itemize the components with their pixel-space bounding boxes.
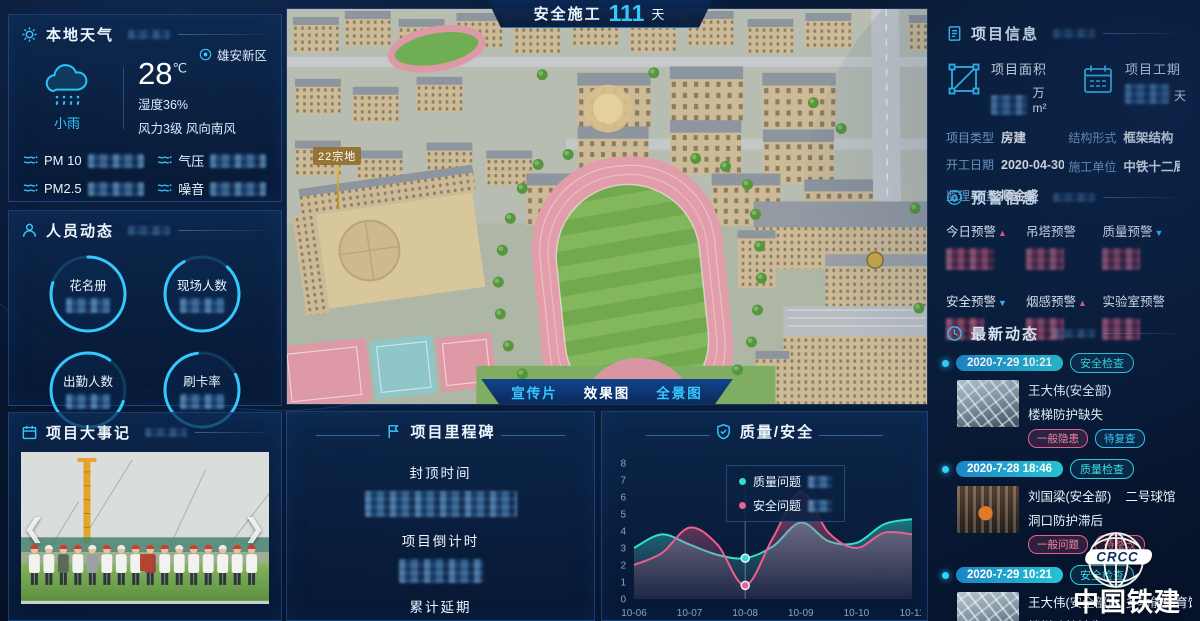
milestone-label: 封顶时间 — [287, 462, 594, 482]
legend-value-redacted — [808, 476, 832, 488]
milestone-value-redacted — [365, 491, 517, 517]
news-venue: 多功能体育馆 — [1125, 592, 1192, 611]
location-name: 雄安新区 — [217, 45, 267, 64]
land-parcel-label: 22宗地 — [313, 147, 361, 165]
air-metric: PM 10 — [23, 151, 149, 170]
document-icon — [946, 25, 963, 42]
milestone-label: 项目倒计时 — [287, 530, 594, 550]
air-metric: 噪音 — [157, 179, 267, 198]
status-tag: 一般隐患 — [1028, 429, 1088, 448]
photo-next-button[interactable]: ❯ — [243, 515, 265, 541]
news-person: 王大伟(安全部) — [1028, 380, 1111, 399]
svg-text:3: 3 — [620, 544, 626, 555]
warning-value-redacted — [1026, 248, 1064, 270]
milestone-label: 累计延期 — [287, 596, 594, 616]
legend-label: 质量问题 — [753, 473, 801, 490]
svg-text:10-10: 10-10 — [844, 608, 870, 619]
legend-value-redacted — [808, 500, 832, 512]
ring-label: 刷卡率 — [183, 371, 221, 390]
warning-item: 吊塔预警 — [1026, 221, 1096, 275]
project-stats: 项目面积 万m² 项目工期 天 — [934, 51, 1192, 117]
news-tags: 一般隐患待复查 — [1028, 429, 1145, 448]
warning-item: 今日预警▲ — [946, 221, 1020, 275]
calendar-icon — [21, 424, 38, 441]
field-label: 开工日期 — [946, 158, 994, 172]
legend-dot — [739, 478, 746, 485]
weather-panel: 本地天气 雄安新区 小雨 28℃ — [8, 14, 282, 202]
location-chip[interactable]: 雄安新区 — [199, 45, 267, 64]
stat-label: 项目工期 — [1125, 62, 1181, 77]
project-field: 施工单位中铁十二局 — [1068, 156, 1180, 175]
milestone-item: 累计延期 — [287, 596, 594, 621]
warning-value-redacted — [1102, 248, 1140, 270]
safety-days-banner: 安全施工 111 天 — [488, 0, 713, 28]
field-label: 项目类型 — [946, 131, 994, 145]
field-value: 中铁十二局 — [1123, 160, 1180, 174]
stat-unit: 万m² — [1032, 84, 1054, 115]
panel-title: 质量/安全 — [740, 421, 814, 442]
milestone-panel: 项目里程碑 封顶时间 项目倒计时 累计延期 — [286, 411, 595, 621]
status-tag: 一般问题 — [1028, 535, 1088, 554]
svg-text:10-06: 10-06 — [621, 608, 647, 619]
milestone-list: 封顶时间 项目倒计时 累计延期 — [287, 462, 594, 621]
svg-text:10-09: 10-09 — [788, 608, 814, 619]
noise-icon — [157, 182, 172, 195]
svg-text:10-08: 10-08 — [732, 608, 758, 619]
clock-icon — [946, 325, 963, 342]
header-ticker-redacted — [145, 428, 187, 437]
svg-text:5: 5 — [620, 510, 626, 521]
location-pin-icon — [199, 48, 212, 61]
metric-label: 噪音 — [178, 179, 204, 198]
event-photo[interactable]: ❮ ❯ — [21, 452, 269, 604]
svg-text:4: 4 — [620, 527, 626, 538]
news-photo-thumbnail[interactable] — [957, 592, 1019, 621]
news-date-badge: 2020-7-29 10:21 — [956, 355, 1063, 371]
area-icon — [946, 61, 982, 97]
ring-label: 花名册 — [69, 275, 107, 294]
pm25-icon — [23, 182, 38, 195]
field-value: 房建 — [1001, 131, 1026, 145]
svg-text:0: 0 — [620, 595, 626, 606]
quality-safety-panel: 质量/安全 01234567810-0610-0710-0810-0910-10… — [601, 411, 928, 621]
status-tag: 待复查 — [1095, 429, 1145, 448]
panel-title: 本地天气 — [46, 24, 114, 45]
view-tab[interactable]: 效果图 — [584, 382, 631, 402]
news-category-badge: 安全检查 — [1070, 353, 1134, 373]
trend-arrow-icon: ▲ — [1078, 298, 1087, 308]
ring-value-redacted — [180, 394, 224, 409]
panel-title: 项目里程碑 — [410, 421, 495, 442]
news-panel: 最新动态 2020-7-29 10:21 安全检查 王大伟(安全部) 楼梯防护缺… — [934, 314, 1192, 621]
metric-value-redacted — [210, 182, 266, 196]
shield-check-icon — [715, 423, 732, 440]
metric-label: PM2.5 — [44, 181, 82, 196]
project-field: 结构形式框架结构 — [1068, 127, 1180, 146]
milestone-value-redacted — [399, 559, 483, 583]
ring-label: 现场人数 — [177, 275, 227, 294]
personnel-ring: 现场人数 — [160, 252, 244, 336]
news-tags: 一般问题待整改 — [1028, 535, 1175, 554]
svg-text:10-11: 10-11 — [900, 608, 921, 619]
warning-value-redacted — [946, 248, 994, 270]
aerial-render — [287, 9, 927, 405]
news-item[interactable]: 2020-7-29 10:21 安全检查 王大伟(安全部) 多功能体育馆 楼梯防… — [942, 565, 1184, 621]
dashboard: 安全施工 111 天 本地天气 雄安新区 — [0, 0, 1200, 621]
milestone-item: 封顶时间 — [287, 462, 594, 517]
project-events-panel: 项目大事记 ❮ ❯ — [8, 412, 282, 621]
header-ticker-redacted — [1053, 329, 1095, 338]
weather-condition: 小雨 — [25, 113, 109, 132]
pressure-icon — [157, 154, 172, 167]
view-tab[interactable]: 宣传片 — [511, 382, 558, 402]
ring-value-redacted — [66, 298, 110, 313]
news-person: 刘国梁(安全部) — [1028, 486, 1111, 505]
news-item[interactable]: 2020-7-29 10:21 安全检查 王大伟(安全部) 楼梯防护缺失 一般隐… — [942, 353, 1184, 448]
legend-dot — [739, 502, 746, 509]
field-label: 施工单位 — [1068, 160, 1116, 174]
metric-value-redacted — [88, 182, 144, 196]
svg-text:6: 6 — [620, 493, 626, 504]
air-metric: 气压 — [157, 151, 267, 170]
metric-label: 气压 — [178, 151, 204, 170]
svg-text:2: 2 — [620, 561, 626, 572]
photo-prev-button[interactable]: ❮ — [23, 515, 45, 541]
warning-label: 烟感预警 — [1026, 295, 1076, 309]
metric-value-redacted — [210, 154, 266, 168]
panel-title: 最新动态 — [971, 323, 1039, 344]
news-item[interactable]: 2020-7-28 18:46 质量检查 刘国梁(安全部) 二号球馆 洞口防护滞… — [942, 459, 1184, 554]
timeline-dot — [942, 466, 949, 473]
air-metrics: PM 10 气压 PM2.5 噪音 — [9, 145, 281, 198]
news-person: 王大伟(安全部) — [1028, 592, 1111, 611]
rain-cloud-icon — [39, 63, 95, 105]
svg-text:7: 7 — [620, 476, 626, 487]
panel-title: 项目信息 — [971, 23, 1039, 44]
project-stat: 项目面积 万m² — [946, 59, 1054, 115]
timeline-dot — [942, 360, 949, 367]
panel-title: 项目大事记 — [46, 422, 131, 443]
ring-value-redacted — [66, 394, 110, 409]
site-3d-view[interactable]: 22宗地 宣传片效果图全景图 — [286, 8, 928, 405]
news-list: 2020-7-29 10:21 安全检查 王大伟(安全部) 楼梯防护缺失 一般隐… — [934, 351, 1192, 621]
alarm-bell-icon — [946, 189, 963, 206]
humidity-text: 湿度36% — [138, 94, 236, 113]
calendar-icon — [1080, 61, 1116, 97]
status-tag: 待整改 — [1095, 535, 1145, 554]
field-value: 框架结构 — [1123, 131, 1173, 145]
ring-label: 出勤人数 — [63, 371, 113, 390]
stat-unit: 天 — [1174, 87, 1186, 104]
project-stat: 项目工期 天 — [1080, 59, 1186, 115]
metric-value-redacted — [88, 154, 144, 168]
project-info-panel: 项目信息 项目面积 万m² 项目工期 天 项目类型房建 结构形式框架结构 开工日… — [934, 14, 1192, 174]
ring-value-redacted — [180, 298, 224, 313]
svg-text:1: 1 — [620, 578, 626, 589]
stat-label: 项目面积 — [991, 62, 1047, 77]
warning-label: 实验室预警 — [1102, 295, 1165, 309]
metric-label: PM 10 — [44, 153, 82, 168]
svg-text:8: 8 — [620, 459, 626, 470]
news-venue: 二号球馆 — [1125, 486, 1175, 505]
project-field: 项目类型房建 — [946, 127, 1064, 146]
milestone-item: 项目倒计时 — [287, 530, 594, 583]
personnel-rings: 花名册 现场人数 出勤人数 刷卡率 — [9, 248, 281, 432]
pm10-icon — [23, 154, 38, 167]
quality-safety-chart: 01234567810-0610-0710-0810-0910-1010-11 … — [608, 449, 921, 621]
news-category-badge: 质量检查 — [1070, 459, 1134, 479]
chart-tooltip: 质量问题安全问题 — [726, 465, 845, 522]
view-tab[interactable]: 全景图 — [656, 382, 703, 402]
panel-title: 人员动态 — [46, 220, 114, 241]
project-field: 开工日期2020-04-30 — [946, 156, 1064, 175]
wind-text: 风力3级 风向南风 — [138, 118, 236, 137]
news-issue: 楼梯防护缺失 — [1028, 404, 1145, 423]
news-date-badge: 2020-7-29 10:21 — [956, 567, 1063, 583]
safety-days-label: 安全施工 — [534, 3, 602, 24]
svg-text:10-07: 10-07 — [677, 608, 703, 619]
warnings-panel: 预警信息 今日预警▲ 吊塔预警 质量预警▼ 安全预警▼ 烟感预警▲ 实验室预警 — [934, 178, 1192, 310]
field-label: 结构形式 — [1068, 131, 1116, 145]
person-icon — [21, 222, 38, 239]
personnel-ring: 花名册 — [46, 252, 130, 336]
stat-value-redacted — [991, 95, 1027, 115]
warning-label: 今日预警 — [946, 225, 996, 239]
header-ticker-redacted — [128, 30, 170, 39]
air-metric: PM2.5 — [23, 179, 149, 198]
temperature-unit: ℃ — [172, 61, 187, 76]
warning-label: 质量预警 — [1102, 225, 1152, 239]
temperature-value: 28 — [138, 56, 172, 91]
legend-label: 安全问题 — [753, 497, 801, 514]
safety-days-unit: 天 — [651, 4, 666, 23]
trend-arrow-icon: ▲ — [998, 228, 1007, 238]
news-photo-thumbnail[interactable] — [957, 380, 1019, 427]
header-ticker-redacted — [128, 226, 170, 235]
safety-days-count: 111 — [609, 2, 645, 25]
news-date-badge: 2020-7-28 18:46 — [956, 461, 1063, 477]
personnel-panel: 人员动态 花名册 现场人数 出勤人数 — [8, 210, 282, 406]
warning-label: 吊塔预警 — [1026, 225, 1076, 239]
trend-arrow-icon: ▼ — [1154, 228, 1163, 238]
news-category-badge: 安全检查 — [1070, 565, 1134, 585]
flag-icon — [385, 423, 402, 440]
warning-label: 安全预警 — [946, 295, 996, 309]
panel-title: 预警信息 — [971, 187, 1039, 208]
timeline-dot — [942, 572, 949, 579]
field-value: 2020-04-30 — [1001, 158, 1064, 172]
news-photo-thumbnail[interactable] — [957, 486, 1019, 533]
warning-item: 质量预警▼ — [1102, 221, 1180, 275]
header-ticker-redacted — [1053, 29, 1095, 38]
view-mode-tabs: 宣传片效果图全景图 — [481, 379, 733, 404]
trend-arrow-icon: ▼ — [998, 298, 1007, 308]
stat-value-redacted — [1125, 84, 1169, 104]
header-ticker-redacted — [1053, 193, 1095, 202]
news-issue: 楼梯防护缺失 — [1028, 616, 1184, 621]
news-issue: 洞口防护滞后 — [1028, 510, 1175, 529]
sun-icon — [21, 26, 38, 43]
